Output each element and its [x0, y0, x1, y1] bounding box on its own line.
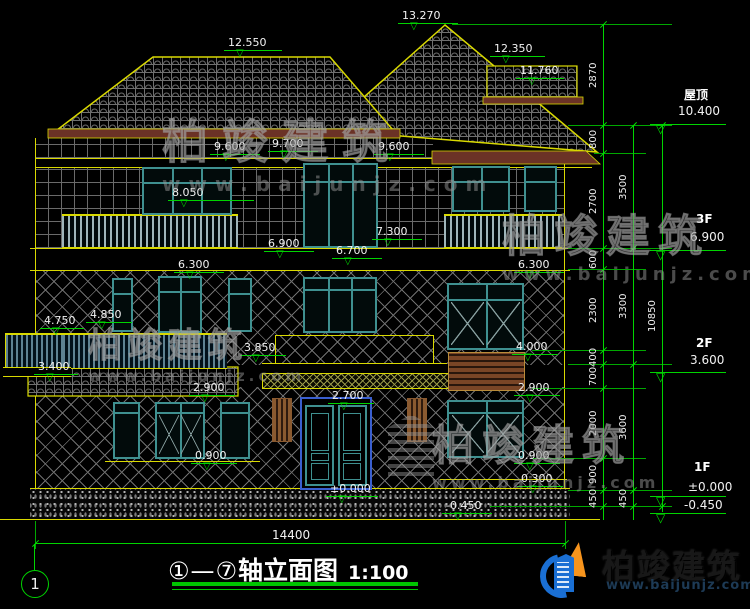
extension-line	[568, 269, 646, 270]
elevation-marker: 11.760▽	[520, 65, 559, 77]
elevation-drawing-canvas: 14400 1 ①—⑦轴立面图1:100 柏竣建筑 www.baijunjz.c…	[0, 0, 750, 609]
storey-name: 1F	[694, 460, 711, 474]
drawing-title: ①—⑦轴立面图1:100	[168, 551, 409, 587]
elevation-marker: 7.300▽	[376, 226, 408, 238]
ext-line-bottom-left	[35, 521, 36, 549]
railing-3f-right	[444, 214, 562, 248]
dimension-chain-line	[603, 24, 604, 520]
window-3f-right-small	[524, 166, 557, 212]
railing-3f-left	[62, 214, 238, 248]
slab-center-hatch	[262, 373, 449, 389]
window-1f-right	[447, 400, 524, 458]
dimension-value: 450	[588, 476, 599, 520]
elevation-marker: -0.450▽	[446, 500, 481, 512]
elevation-value: ±0.000	[330, 482, 371, 495]
storey-level-triangle: ▽	[656, 513, 665, 524]
elevation-value: 12.550	[228, 36, 267, 49]
louver-spandrel-right	[448, 352, 525, 391]
window-2f-right	[447, 283, 524, 350]
elevation-marker: 4.750▽	[44, 315, 76, 327]
storey-elevation: 6.900	[690, 230, 724, 244]
title-name: 轴立面图	[238, 556, 338, 585]
dimension-value: 2300	[588, 288, 599, 332]
extension-line	[452, 24, 672, 25]
elevation-marker: 12.550▽	[228, 37, 267, 49]
window-2f-center	[303, 277, 377, 333]
storey-level-triangle: ▽	[656, 496, 665, 507]
elevation-marker: 0.900▽	[518, 450, 550, 462]
brand-logo: 柏竣建筑 www.baijunjz.com	[538, 540, 750, 608]
dimension-chain-line	[633, 125, 634, 520]
extension-line	[490, 506, 672, 507]
elevation-value: 11.760	[520, 64, 559, 77]
storey-elevation: ±0.000	[688, 480, 732, 494]
elevation-marker: 9.700▽	[272, 138, 304, 150]
elevation-marker: 3.850▽	[244, 342, 276, 354]
dimension-value: 800	[588, 117, 599, 161]
dimension-value: 2000	[588, 401, 599, 445]
elevation-marker: 2.900▽	[193, 382, 225, 394]
dimension-value: 3500	[618, 165, 629, 209]
axis-stem	[34, 544, 35, 570]
dimension-chain-line	[662, 125, 663, 512]
elevation-marker: 0.300▽	[521, 473, 553, 485]
window-3f-center	[303, 163, 378, 248]
dimension-value: 2700	[588, 179, 599, 223]
window-2f-left-1	[112, 278, 133, 332]
bottom-dim-text: 14400	[272, 528, 310, 542]
pilaster-left	[272, 398, 292, 442]
axis-bubble-1: 1	[21, 570, 49, 598]
window-2f-left-2	[158, 276, 202, 333]
elevation-marker: 4.850▽	[90, 309, 122, 321]
elevation-marker: 4.000▽	[516, 341, 548, 353]
elevation-marker: ±0.000▽	[330, 483, 371, 495]
elevation-marker: 2.900▽	[518, 382, 550, 394]
fascia-right-flat	[483, 97, 583, 104]
dimension-value: 600	[588, 237, 599, 281]
elevation-marker: 6.300▽	[518, 259, 550, 271]
elevation-marker: 9.600▽	[378, 141, 410, 153]
roof-left-hip	[57, 57, 393, 130]
elevation-marker: 6.300▽	[178, 259, 210, 271]
dimension-value: 3600	[618, 405, 629, 449]
storey-elevation: 3.600	[690, 353, 724, 367]
elevation-marker: 2.700▽	[332, 390, 364, 402]
elevation-value: 13.270	[402, 9, 441, 22]
dimension-value: 450	[618, 476, 629, 520]
elevation-value: 12.350	[494, 42, 533, 55]
title-underline-thick	[172, 582, 418, 586]
elevation-marker: 6.900▽	[268, 238, 300, 250]
extension-line	[568, 364, 672, 365]
storey-level-triangle: ▽	[656, 250, 665, 261]
elevation-marker: 3.400▽	[38, 361, 70, 373]
fascia-left	[48, 129, 400, 138]
dimension-value: 2870	[588, 53, 599, 97]
storey-level-triangle: ▽	[656, 124, 665, 135]
railing-2f-left	[63, 333, 227, 369]
fascia-right	[432, 151, 600, 164]
elevation-marker: 8.050▽	[172, 187, 204, 199]
elevation-marker: 13.270▽	[402, 10, 441, 22]
dimension-value: 3300	[618, 284, 629, 328]
elevation-marker: 0.900▽	[195, 450, 227, 462]
door-leaf-right	[338, 405, 367, 486]
door-leaf-left	[305, 405, 334, 486]
storey-name: 3F	[696, 212, 713, 226]
elevation-marker: 6.700▽	[336, 245, 368, 257]
logo-text-url: www.baijunjz.com	[606, 578, 750, 593]
storey-elevation: -0.450	[684, 498, 723, 512]
storey-elevation: 10.400	[678, 104, 720, 118]
dimension-value: 10850	[647, 294, 658, 338]
logo-icon	[538, 542, 598, 604]
bottom-dim-line	[35, 543, 565, 544]
storey-level-triangle: ▽	[656, 372, 665, 383]
elevation-marker: 12.350▽	[494, 43, 533, 55]
storey-name: 屋顶	[684, 86, 708, 103]
title-axes: ①—⑦	[168, 557, 238, 585]
title-underline-thin	[172, 589, 418, 590]
title-scale: 1:100	[348, 562, 408, 584]
sill-line-1f-left	[105, 461, 260, 462]
entrance-door	[300, 397, 372, 490]
elevation-marker: 9.600▽	[214, 141, 246, 153]
window-3f-right	[452, 166, 510, 212]
window-1f-left-1	[113, 402, 140, 459]
dimension-value: 700	[588, 354, 599, 398]
elevation-value: -0.450	[446, 499, 481, 512]
storey-name: 2F	[696, 336, 713, 350]
window-2f-left-3	[228, 278, 252, 332]
